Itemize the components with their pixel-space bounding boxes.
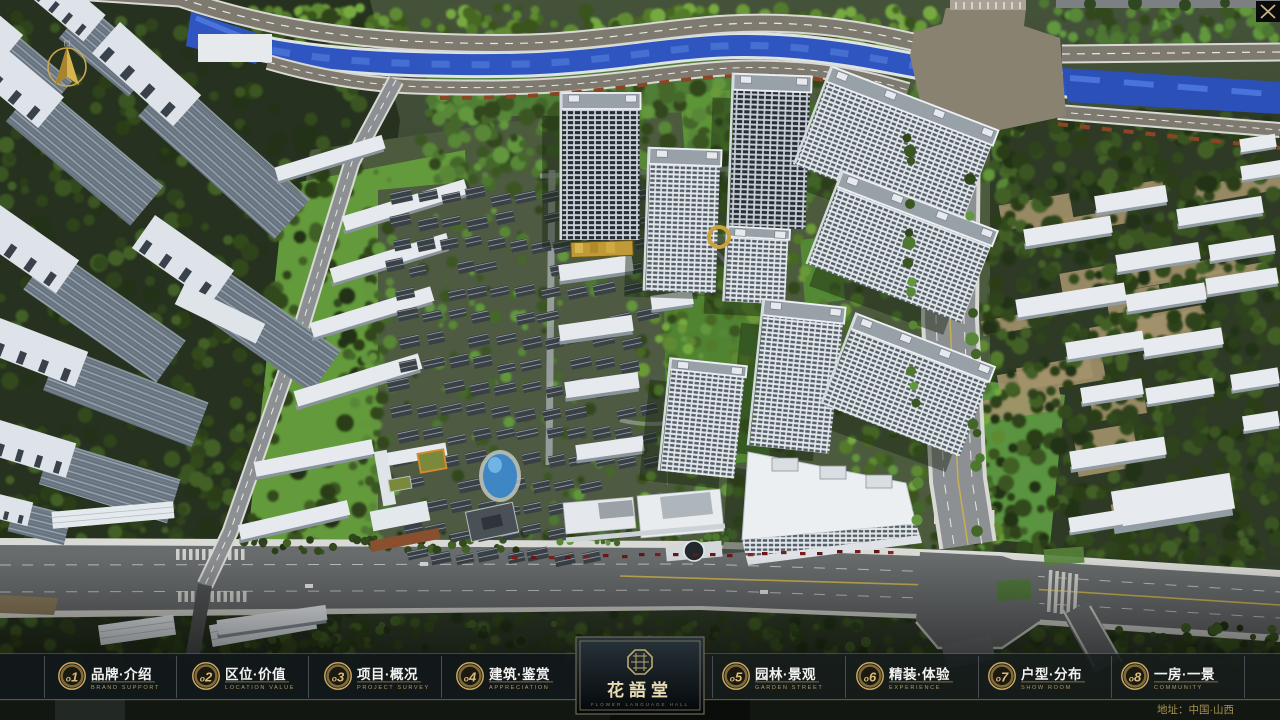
svg-text:园林·景观: 园林·景观 — [755, 666, 816, 682]
svg-text:地址：中国·山西: 地址：中国·山西 — [1157, 703, 1234, 716]
svg-text:EXPERIENCE: EXPERIENCE — [889, 685, 941, 691]
svg-text:项目·概况: 项目·概况 — [357, 666, 418, 682]
svg-text:FLOWER LANGUAGE HALL: FLOWER LANGUAGE HALL — [591, 702, 689, 707]
svg-text:APPRECIATION: APPRECIATION — [489, 685, 549, 691]
svg-text:建筑·鉴赏: 建筑·鉴赏 — [488, 666, 550, 682]
svg-text:SHOW ROOM: SHOW ROOM — [1021, 685, 1072, 691]
svg-text:GARDEN STREET: GARDEN STREET — [755, 685, 823, 691]
svg-text:PROJECT SURVEY: PROJECT SURVEY — [357, 685, 430, 691]
svg-text:户型·分布: 户型·分布 — [1021, 666, 1082, 682]
svg-text:COMMUNITY: COMMUNITY — [1154, 685, 1203, 691]
svg-text:区位·价值: 区位·价值 — [225, 666, 286, 682]
svg-text:BRAND SUPPORT: BRAND SUPPORT — [91, 685, 160, 691]
svg-text:品牌·介绍: 品牌·介绍 — [91, 666, 152, 682]
svg-text:精装·体验: 精装·体验 — [889, 666, 950, 682]
svg-text:花語堂: 花語堂 — [607, 680, 673, 700]
svg-text:一房·一景: 一房·一景 — [1154, 666, 1215, 682]
svg-text:LOCATION VALUE: LOCATION VALUE — [225, 685, 295, 691]
